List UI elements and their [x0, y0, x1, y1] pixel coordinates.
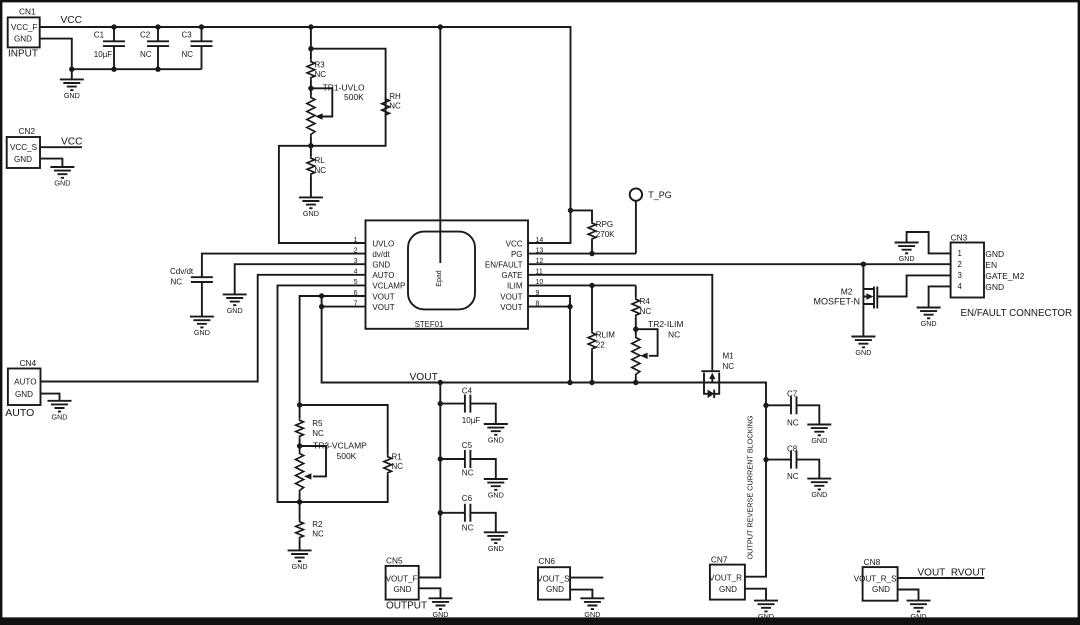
svg-text:NC: NC: [182, 50, 194, 59]
svg-text:R4: R4: [640, 297, 651, 306]
svg-text:PG: PG: [511, 250, 523, 259]
svg-text:GND: GND: [372, 261, 390, 270]
svg-text:NC: NC: [315, 70, 327, 79]
svg-text:GATE: GATE: [501, 271, 522, 280]
svg-text:270K: 270K: [596, 230, 615, 239]
svg-text:CN8: CN8: [864, 557, 881, 567]
svg-text:R5: R5: [312, 419, 323, 428]
svg-text:VOUT: VOUT: [372, 292, 394, 301]
svg-text:CN1: CN1: [19, 7, 36, 17]
svg-text:R2: R2: [312, 520, 323, 529]
svg-text:VCLAMP: VCLAMP: [372, 282, 405, 291]
svg-text:EN/FAULT CONNECTOR: EN/FAULT CONNECTOR: [961, 308, 1073, 319]
svg-text:22: 22: [596, 340, 605, 349]
svg-text:VOUT: VOUT: [500, 303, 522, 312]
svg-text:AUTO: AUTO: [372, 271, 394, 280]
svg-text:VOUT_RVOUT: VOUT_RVOUT: [918, 568, 986, 579]
svg-text:OUTPUT: OUTPUT: [386, 601, 427, 612]
svg-text:T_PG: T_PG: [648, 190, 672, 200]
svg-text:Epad: Epad: [436, 270, 443, 286]
svg-text:NC: NC: [312, 429, 324, 438]
svg-text:VOUT_R_S: VOUT_R_S: [854, 574, 897, 583]
svg-text:CN2: CN2: [19, 126, 36, 136]
svg-text:VCC: VCC: [506, 239, 523, 248]
svg-text:GND: GND: [719, 585, 737, 594]
svg-text:GND: GND: [394, 585, 412, 594]
svg-text:GATE_M2: GATE_M2: [985, 271, 1024, 281]
svg-text:NC: NC: [640, 307, 652, 316]
svg-text:GND: GND: [872, 585, 890, 594]
svg-text:GND: GND: [14, 155, 32, 164]
svg-text:GND: GND: [546, 585, 564, 594]
svg-text:AUTO: AUTO: [5, 407, 34, 419]
svg-text:RPG: RPG: [596, 220, 613, 229]
svg-text:VOUT: VOUT: [500, 292, 522, 301]
svg-text:UVLO: UVLO: [372, 239, 394, 248]
svg-text:500K: 500K: [344, 92, 364, 102]
svg-text:RL: RL: [315, 156, 326, 165]
svg-text:OUTPUT REVERSE CURRENT BLOCKIN: OUTPUT REVERSE CURRENT BLOCKING: [746, 415, 755, 559]
svg-text:C8: C8: [787, 444, 798, 453]
svg-text:VOUT_R: VOUT_R: [709, 573, 742, 582]
svg-text:INPUT: INPUT: [8, 48, 38, 59]
svg-text:CN4: CN4: [20, 358, 37, 368]
svg-text:GND: GND: [985, 249, 1004, 259]
svg-text:NC: NC: [389, 102, 401, 111]
svg-text:C3: C3: [182, 30, 193, 39]
svg-text:C5: C5: [462, 441, 473, 450]
svg-text:M1: M1: [723, 352, 735, 361]
svg-text:dv/dt: dv/dt: [372, 250, 390, 259]
svg-text:CN7: CN7: [711, 555, 728, 565]
svg-text:VOUT_S: VOUT_S: [537, 574, 570, 583]
svg-text:VOUT: VOUT: [372, 303, 394, 312]
svg-text:M2: M2: [841, 286, 853, 296]
svg-text:C4: C4: [462, 386, 473, 395]
svg-text:GND: GND: [14, 35, 32, 44]
svg-text:NC: NC: [462, 469, 474, 478]
svg-text:STEF01: STEF01: [415, 320, 444, 329]
svg-text:RLIM: RLIM: [596, 331, 615, 340]
svg-text:NC: NC: [723, 362, 735, 371]
svg-text:1: 1: [354, 237, 358, 244]
svg-text:AUTO: AUTO: [14, 378, 36, 387]
svg-text:ILIM: ILIM: [507, 282, 523, 291]
svg-text:NC: NC: [315, 166, 327, 175]
svg-text:VCC_S: VCC_S: [10, 143, 38, 152]
svg-text:EN/FAULT: EN/FAULT: [485, 261, 523, 270]
svg-text:CN5: CN5: [386, 555, 403, 565]
svg-text:VCC_F: VCC_F: [11, 23, 38, 32]
svg-text:NC: NC: [312, 530, 324, 539]
svg-text:NC: NC: [787, 472, 799, 481]
svg-text:VOUT_F: VOUT_F: [386, 574, 418, 583]
svg-text:CN6: CN6: [538, 556, 555, 566]
svg-text:NC: NC: [668, 329, 680, 339]
svg-text:VOUT: VOUT: [410, 372, 438, 383]
svg-text:Cdv/dt: Cdv/dt: [170, 267, 194, 276]
svg-text:C1: C1: [94, 30, 105, 39]
svg-text:NC: NC: [171, 278, 183, 287]
svg-text:MOSFET-N: MOSFET-N: [814, 297, 861, 307]
svg-text:C2: C2: [140, 30, 151, 39]
svg-text:NC: NC: [140, 50, 152, 59]
svg-text:500K: 500K: [337, 451, 357, 461]
svg-text:VCC: VCC: [61, 137, 83, 148]
svg-text:10µF: 10µF: [462, 416, 481, 425]
svg-text:NC: NC: [392, 462, 404, 471]
svg-text:R3: R3: [315, 61, 326, 70]
svg-text:GND: GND: [985, 282, 1004, 292]
svg-text:GND: GND: [15, 390, 33, 399]
svg-text:EN: EN: [985, 260, 997, 270]
svg-text:C7: C7: [787, 390, 798, 399]
svg-text:RH: RH: [389, 92, 401, 101]
svg-text:4: 4: [958, 282, 963, 291]
svg-text:NC: NC: [787, 418, 799, 427]
svg-text:2: 2: [958, 260, 962, 269]
svg-text:NC: NC: [462, 523, 474, 532]
svg-text:10µF: 10µF: [94, 50, 113, 59]
svg-text:C6: C6: [462, 494, 473, 503]
svg-text:1: 1: [958, 249, 962, 258]
svg-text:VCC: VCC: [61, 15, 83, 26]
svg-text:14: 14: [536, 237, 544, 244]
svg-text:TR3-VCLAMP: TR3-VCLAMP: [313, 441, 367, 451]
svg-text:CN3: CN3: [951, 233, 968, 243]
svg-text:TR2-ILIM: TR2-ILIM: [648, 319, 683, 329]
svg-text:R1: R1: [392, 452, 403, 461]
svg-text:3: 3: [958, 271, 962, 280]
